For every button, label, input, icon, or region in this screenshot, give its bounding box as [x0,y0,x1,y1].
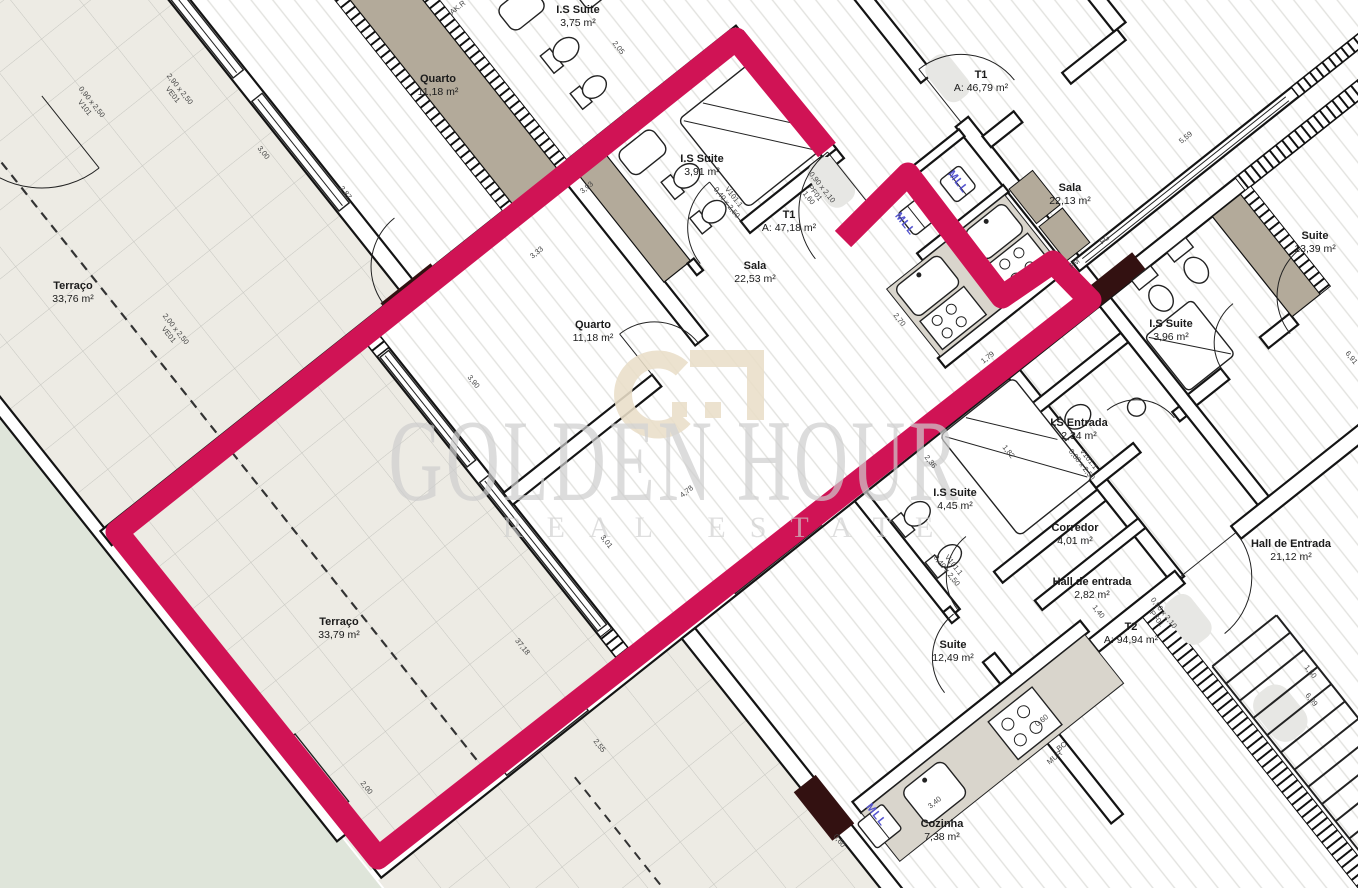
watermark-subtitle-text: REAL ESTATE [503,511,958,544]
watermark-brand-text: GOLDEN HOUR [389,396,962,526]
floor-plan-viewport[interactable]: GOLDEN HOUR REAL ESTATE Quarto11,18 m²I.… [0,0,1358,888]
floor-plan-svg: GOLDEN HOUR REAL ESTATE [0,0,1358,888]
